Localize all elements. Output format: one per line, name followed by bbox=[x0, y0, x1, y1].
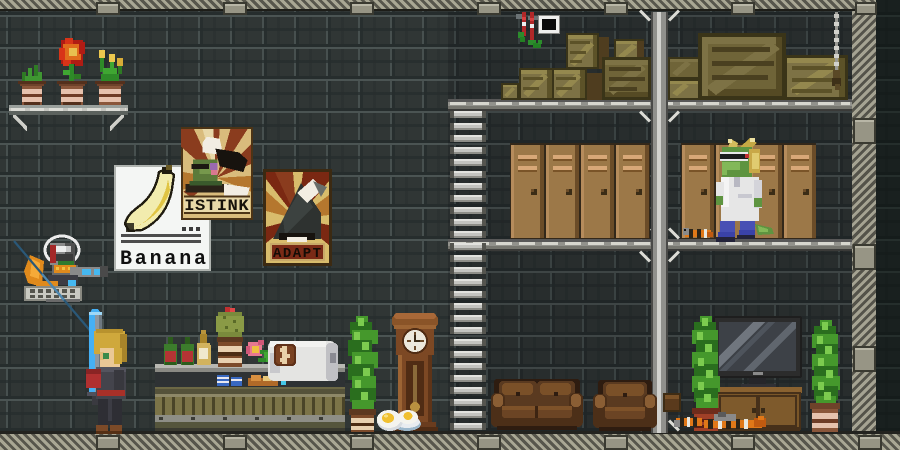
svg-text:ISTINK: ISTINK bbox=[184, 197, 249, 215]
svg-text:ADAPT: ADAPT bbox=[273, 246, 321, 262]
